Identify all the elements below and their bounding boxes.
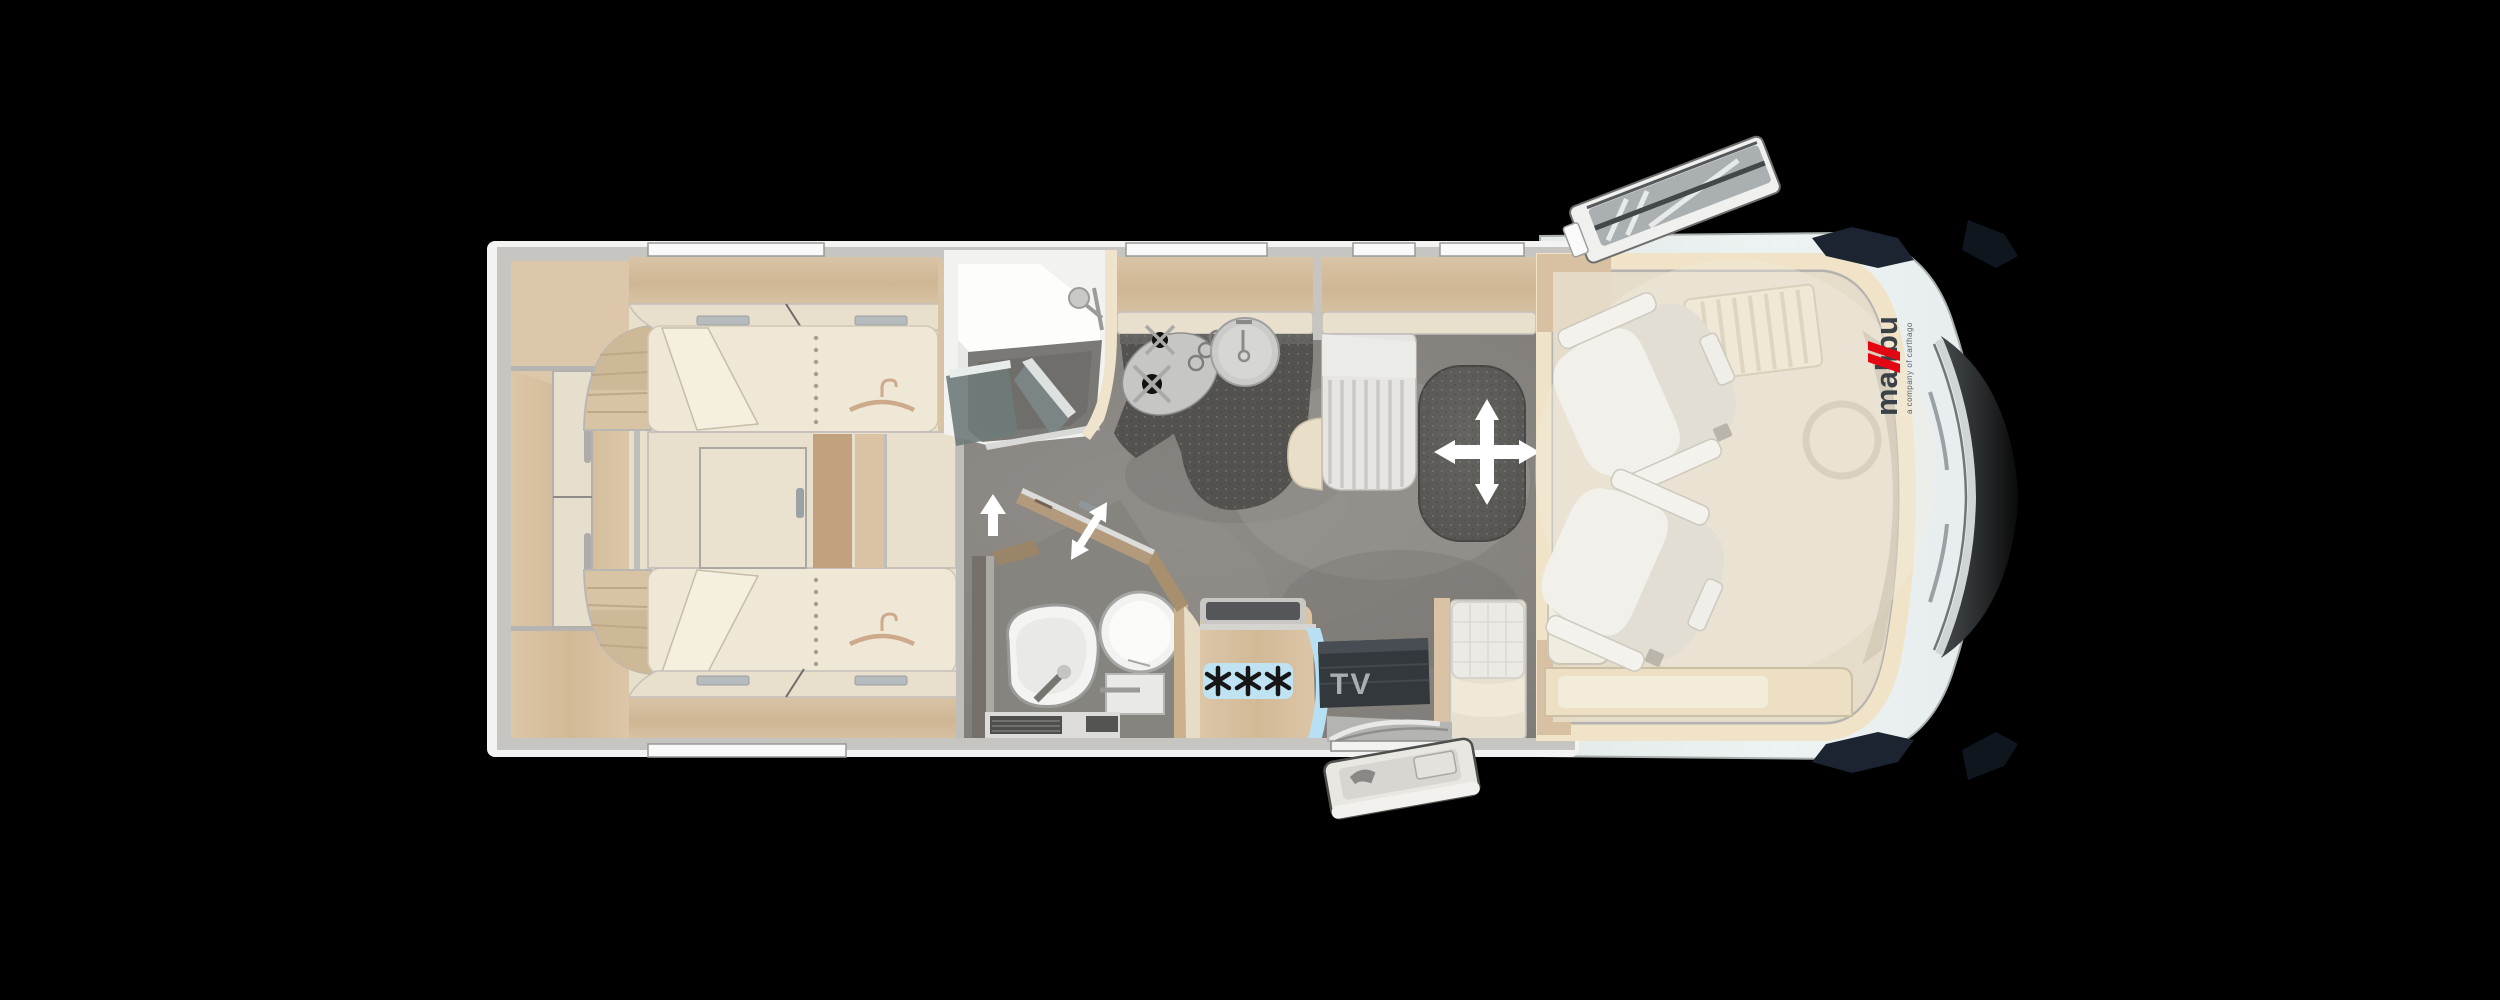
svg-text:a company of carthago: a company of carthago: [1905, 322, 1914, 414]
svg-text:TV: TV: [1330, 668, 1372, 701]
